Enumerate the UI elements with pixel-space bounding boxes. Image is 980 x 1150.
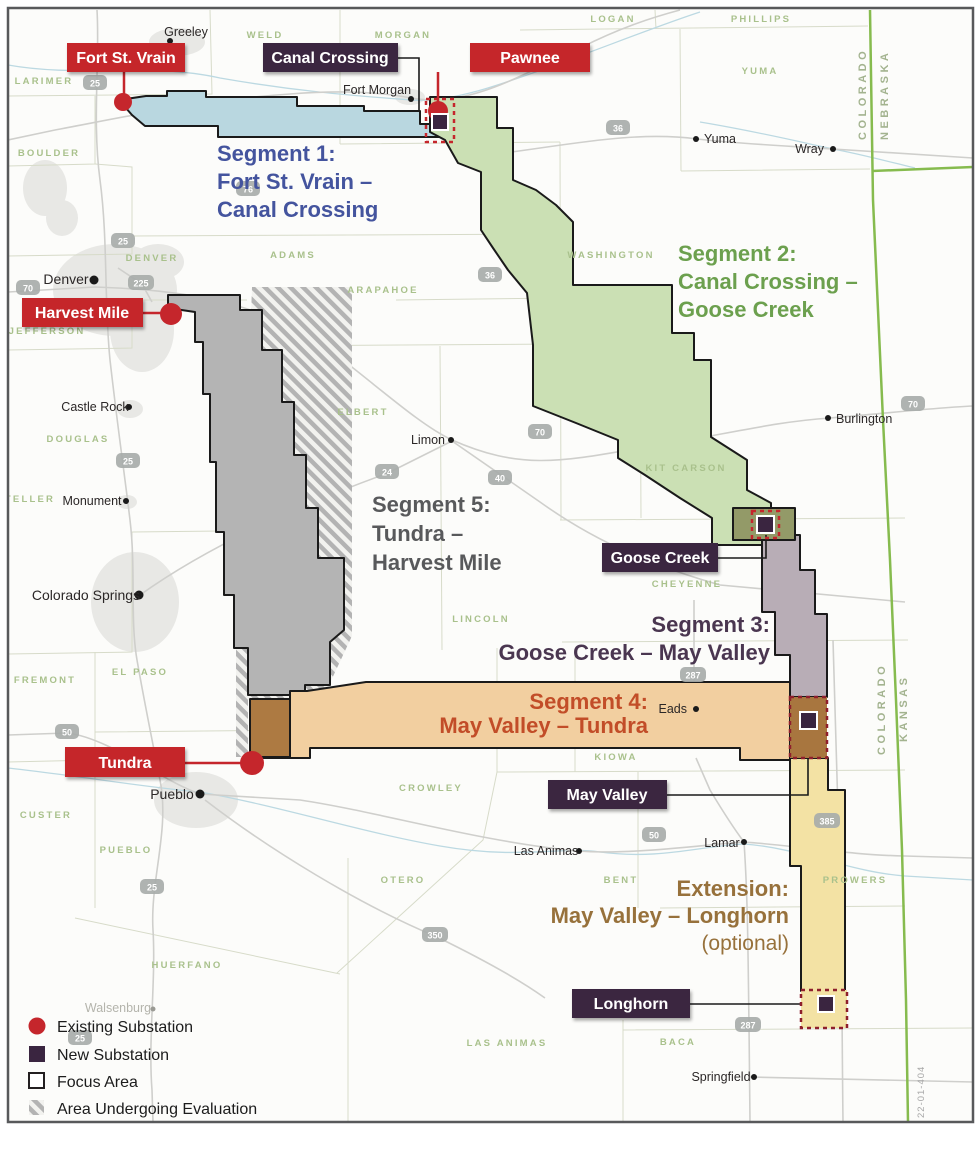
label-harvest-mile: Harvest Mile [35, 305, 129, 322]
legend-evaluation-icon [29, 1100, 44, 1115]
label-longhorn: Longhorn [594, 996, 669, 1013]
county-label: LINCOLN [452, 614, 510, 625]
city-label: Denver [43, 271, 88, 287]
county-label: FREMONT [14, 675, 76, 686]
legend-new-substation-icon [29, 1046, 45, 1062]
legend-new-label: New Substation [57, 1047, 169, 1064]
us287-shield: 287 [740, 1021, 755, 1031]
city-label: Colorado Springs [32, 587, 140, 603]
city-label: Lamar [704, 836, 739, 850]
label-tundra: Tundra [98, 755, 151, 772]
existing-substation-marker [114, 93, 132, 111]
city-label: Limon [411, 433, 445, 447]
us36-shield: 36 [613, 124, 623, 134]
existing-substation-marker [240, 751, 264, 775]
existing-substation-marker [160, 303, 182, 325]
label-pawnee: Pawnee [500, 50, 560, 67]
county-label: HUERFANO [152, 960, 223, 971]
state-label-nebraska: NEBRASKA [879, 50, 891, 140]
label-may-valley: May Valley [567, 787, 648, 804]
county-label: LARIMER [15, 76, 74, 87]
i225-shield: 225 [133, 279, 148, 289]
new-substation-marker [800, 712, 817, 729]
county-label: BENT [604, 875, 639, 886]
city-label: Castle Rock [61, 400, 129, 414]
state-label-colorado: COLORADO [857, 48, 869, 140]
county-label: OTERO [381, 875, 426, 886]
county-label: WASHINGTON [567, 250, 654, 261]
us385-shield: 385 [819, 817, 834, 827]
county-label: ADAMS [270, 250, 316, 261]
segment-1-line2: Fort St. Vrain – [217, 169, 372, 194]
city-label: Eads [659, 702, 688, 716]
segment-5-line3: Harvest Mile [372, 550, 502, 575]
county-label: KIT CARSON [645, 463, 726, 474]
county-label: WELD [247, 30, 284, 41]
state-label-kansas: KANSAS [898, 675, 910, 742]
segment-2-line2: Canal Crossing – [678, 269, 858, 294]
new-substation-marker [757, 516, 774, 533]
us287-shield: 287 [685, 671, 700, 681]
city-label: Monument [62, 494, 122, 508]
county-label: BACA [660, 1037, 696, 1048]
legend-existing-substation-icon [29, 1018, 46, 1035]
segment-1-title: Segment 1: [217, 141, 336, 166]
city-label: Wray [795, 142, 825, 156]
county-label: DOUGLAS [47, 434, 110, 445]
county-label: CUSTER [20, 810, 72, 821]
city-label: Walsenburg [85, 1001, 151, 1015]
county-label: YUMA [742, 66, 779, 77]
county-label: TELLER [5, 494, 55, 505]
label-fort-st-vrain: Fort St. Vrain [76, 50, 176, 67]
segment-5-title: Segment 5: [372, 492, 491, 517]
county-label: PHILLIPS [731, 14, 791, 25]
county-label: ELBERT [337, 407, 388, 418]
label-goose-creek: Goose Creek [611, 550, 710, 567]
extension-line2: May Valley – Longhorn [551, 903, 789, 928]
segment-5-line2: Tundra – [372, 521, 463, 546]
county-label: LAS ANIMAS [467, 1038, 548, 1049]
county-label: JEFFERSON [9, 326, 86, 337]
extension-title: Extension: [677, 876, 789, 901]
segment-3-title: Segment 3: [651, 612, 770, 637]
county-label: PROWERS [823, 875, 888, 886]
segment-2-line3: Goose Creek [678, 297, 814, 322]
county-label: PUEBLO [100, 845, 153, 856]
i70-shield: 70 [908, 400, 918, 410]
legend-focus-area-icon [29, 1073, 44, 1088]
segment-3-line2: Goose Creek – May Valley [499, 640, 771, 665]
county-label: EL PASO [112, 667, 168, 678]
map-code: 22-01-404 [916, 1066, 927, 1118]
county-label: BOULDER [18, 148, 80, 159]
project-map: 25 25 25 25 25 76 70 70 70 225 36 36 24 … [0, 0, 980, 1150]
county-label: DENVER [126, 253, 179, 264]
city-label: Fort Morgan [343, 83, 411, 97]
us40-shield: 40 [495, 474, 505, 484]
county-label: MORGAN [375, 30, 431, 41]
us36-shield: 36 [485, 271, 495, 281]
city-label: Burlington [836, 412, 892, 426]
i70-shield: 70 [23, 284, 33, 294]
county-label: CHEYENNE [652, 579, 722, 590]
city-label: Greeley [164, 25, 209, 39]
city-label: Springfield [691, 1070, 750, 1084]
new-substation-marker [432, 114, 448, 130]
i70-shield: 70 [535, 428, 545, 438]
segment-2-title: Segment 2: [678, 241, 797, 266]
us50-shield: 50 [62, 728, 72, 738]
i25-shield: 25 [118, 237, 128, 247]
label-canal-crossing: Canal Crossing [271, 50, 388, 67]
i25-shield: 25 [123, 457, 133, 467]
segment-1-line3: Canal Crossing [217, 197, 378, 222]
segment-4-title: Segment 4: [529, 689, 648, 714]
county-label: LOGAN [590, 14, 635, 25]
city-label: Pueblo [150, 786, 194, 802]
segment-4-line2: May Valley – Tundra [439, 713, 648, 738]
county-label: CROWLEY [399, 783, 463, 794]
us50-shield: 50 [649, 831, 659, 841]
extension-line3: (optional) [701, 932, 789, 955]
legend-evaluation-label: Area Undergoing Evaluation [57, 1101, 257, 1118]
i25-shield: 25 [90, 79, 100, 89]
us350-shield: 350 [427, 931, 442, 941]
legend-focus-label: Focus Area [57, 1074, 138, 1091]
us24-shield: 24 [382, 468, 392, 478]
county-label: ARAPAHOE [347, 285, 418, 296]
state-label-colorado: COLORADO [876, 663, 888, 755]
county-label: KIOWA [594, 752, 637, 763]
tundra-overlap-patch [250, 699, 290, 757]
i25-shield: 25 [147, 883, 157, 893]
city-label: Yuma [704, 132, 736, 146]
city-label: Las Animas [514, 844, 579, 858]
new-substation-marker [818, 996, 834, 1012]
legend-existing-label: Existing Substation [57, 1019, 193, 1036]
